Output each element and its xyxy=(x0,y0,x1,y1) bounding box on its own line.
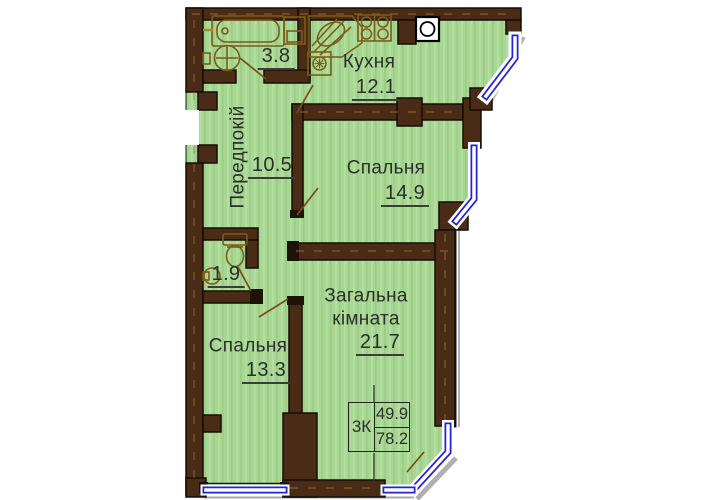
hallway-name-label: Передпокій xyxy=(229,105,248,208)
wall-left-stub xyxy=(203,415,221,432)
wall-wc-right xyxy=(246,240,258,268)
bathroom-area-label: 3.8 xyxy=(258,46,295,70)
bedroom2-name-label: Спальня xyxy=(209,337,287,356)
wc-area-label: 1.9 xyxy=(208,264,245,288)
ventilation-icon xyxy=(416,17,439,41)
living-name-line1: Загальна xyxy=(324,287,408,306)
kitchen-area-label: 12.1 xyxy=(352,77,400,101)
wall-vent-step xyxy=(398,20,416,44)
wall-wc-bottom xyxy=(203,291,258,303)
wall-living-left xyxy=(289,300,302,415)
total-area-value: 78.2 xyxy=(375,428,409,452)
kitchen-name-label: Кухня xyxy=(343,53,395,72)
bedroom2-area-label: 13.3 xyxy=(242,360,290,384)
entry-jamb-top xyxy=(198,92,217,110)
wall-bath-bottom-left xyxy=(203,70,236,83)
wall-bath-bottom-right xyxy=(264,70,310,83)
living-area-value: 49.9 xyxy=(375,403,409,428)
floor-plan-canvas: 3.8 Кухня 12.1 Передпокій 10.5 Спальня 1… xyxy=(0,0,708,500)
bedroom1-area-label: 14.9 xyxy=(381,183,429,207)
hallway-area-label: 10.5 xyxy=(248,155,296,179)
entry-door-opening xyxy=(181,110,199,145)
living-area-label: 21.7 xyxy=(356,332,404,356)
living-name-line2: кімната xyxy=(332,310,399,329)
bedroom1-name-label: Спальня xyxy=(347,159,425,178)
apartment-summary-box: 3К 49.9 78.2 xyxy=(348,402,410,452)
apartment-code: 3К xyxy=(349,403,375,451)
entry-jamb-bottom xyxy=(198,145,217,163)
